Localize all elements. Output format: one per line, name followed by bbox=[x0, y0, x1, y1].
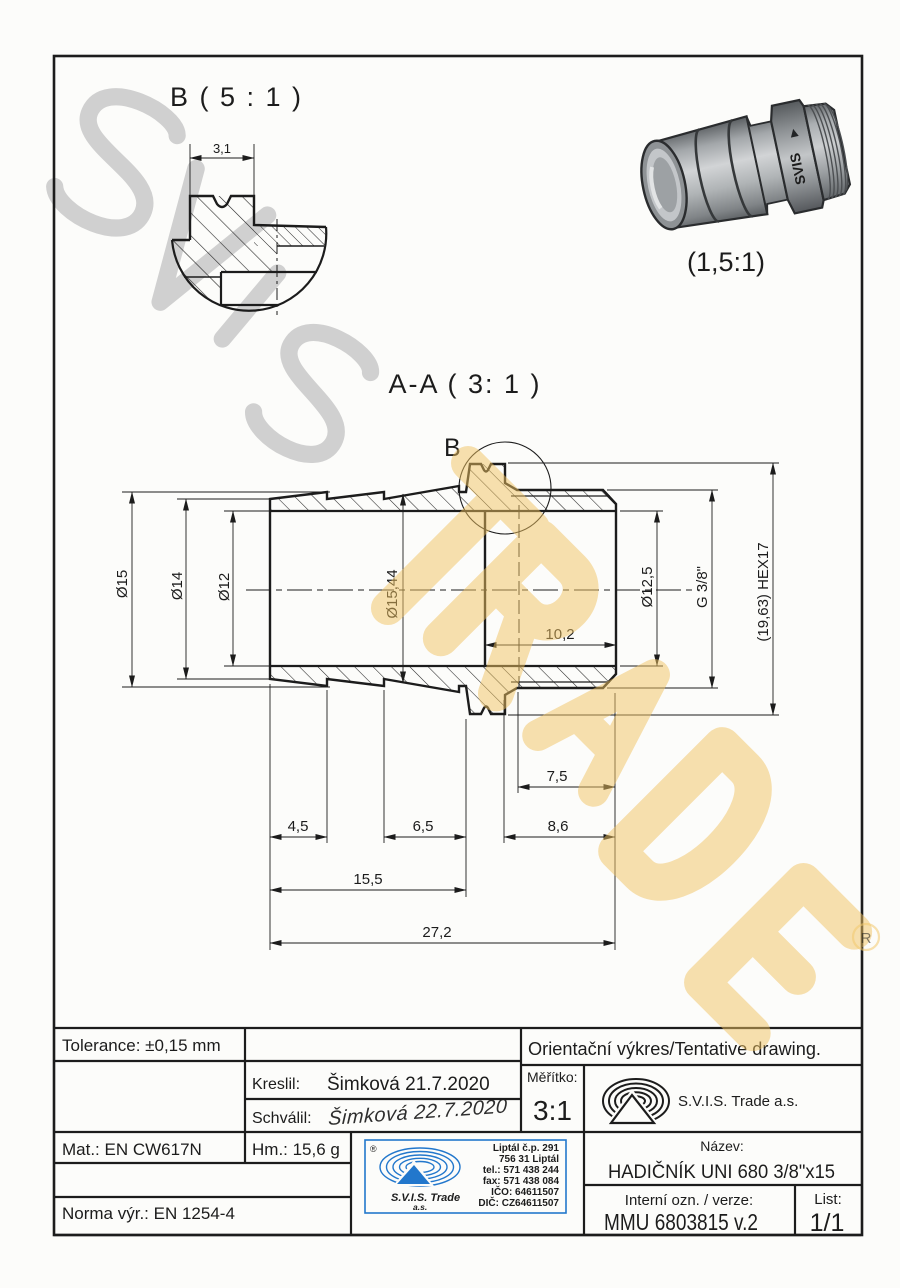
svg-text:Měřítko:: Měřítko: bbox=[527, 1069, 578, 1085]
svg-text:3:1: 3:1 bbox=[533, 1095, 572, 1126]
svg-text:Ø12: Ø12 bbox=[216, 573, 233, 601]
svg-text:R: R bbox=[861, 930, 872, 947]
svg-text:(19,63) HEX17: (19,63) HEX17 bbox=[755, 542, 772, 641]
svg-text:MMU 6803815 v.2: MMU 6803815 v.2 bbox=[604, 1209, 758, 1235]
svg-text:®: ® bbox=[370, 1144, 377, 1154]
svg-text:S.V.I.S. Trade a.s.: S.V.I.S. Trade a.s. bbox=[678, 1093, 798, 1110]
svg-text:HADIČNÍK UNI 680 3/8"x15: HADIČNÍK UNI 680 3/8"x15 bbox=[608, 1161, 835, 1183]
svg-text:A-A ( 3: 1 ): A-A ( 3: 1 ) bbox=[388, 369, 541, 399]
svg-text:(1,5:1): (1,5:1) bbox=[687, 247, 765, 277]
svg-text:B ( 5 : 1 ): B ( 5 : 1 ) bbox=[170, 82, 303, 112]
svg-text:Orientační výkres/Tentative dr: Orientační výkres/Tentative drawing. bbox=[528, 1039, 821, 1059]
svg-text:IČO: 64611507: IČO: 64611507 bbox=[491, 1185, 559, 1198]
svg-text:27,2: 27,2 bbox=[422, 924, 451, 941]
svg-text:8,6: 8,6 bbox=[548, 818, 569, 835]
svg-text:6,5: 6,5 bbox=[413, 818, 434, 835]
svg-text:Tolerance: ±0,15 mm: Tolerance: ±0,15 mm bbox=[62, 1036, 221, 1055]
svg-text:3,1: 3,1 bbox=[213, 141, 231, 156]
svg-text:Ø15: Ø15 bbox=[114, 570, 131, 598]
svg-text:tel.: 571 438 244: tel.: 571 438 244 bbox=[483, 1165, 560, 1176]
svg-text:4,5: 4,5 bbox=[288, 818, 309, 835]
svg-text:Ø14: Ø14 bbox=[169, 572, 186, 600]
svg-text:Liptál č.p. 291: Liptál č.p. 291 bbox=[493, 1143, 560, 1154]
svg-text:a.s.: a.s. bbox=[413, 1202, 427, 1212]
svg-text:Hm.: 15,6 g: Hm.: 15,6 g bbox=[252, 1140, 340, 1159]
svg-text:Mat.: EN CW617N: Mat.: EN CW617N bbox=[62, 1140, 202, 1159]
svg-text:Norma výr.: EN 1254-4: Norma výr.: EN 1254-4 bbox=[62, 1204, 235, 1223]
svg-text:Šimková 21.7.2020: Šimková 21.7.2020 bbox=[327, 1073, 490, 1095]
svg-text:7,5: 7,5 bbox=[547, 768, 568, 785]
svg-text:Schválil:: Schválil: bbox=[252, 1110, 312, 1127]
svg-text:Název:: Název: bbox=[700, 1138, 744, 1154]
svg-text:G 3/8": G 3/8" bbox=[694, 566, 711, 608]
svg-text:Interní ozn. / verze:: Interní ozn. / verze: bbox=[625, 1192, 753, 1209]
svg-text:1/1: 1/1 bbox=[810, 1209, 845, 1237]
svg-text:Kreslil:: Kreslil: bbox=[252, 1076, 300, 1093]
svg-text:DIČ: CZ64611507: DIČ: CZ64611507 bbox=[478, 1196, 559, 1209]
svg-text:Ø12,5: Ø12,5 bbox=[639, 567, 656, 608]
svg-text:756 31 Liptál: 756 31 Liptál bbox=[499, 1154, 559, 1165]
svg-text:List:: List: bbox=[814, 1191, 842, 1208]
svg-text:fax: 571 438 084: fax: 571 438 084 bbox=[483, 1176, 560, 1187]
svg-text:15,5: 15,5 bbox=[353, 871, 382, 888]
